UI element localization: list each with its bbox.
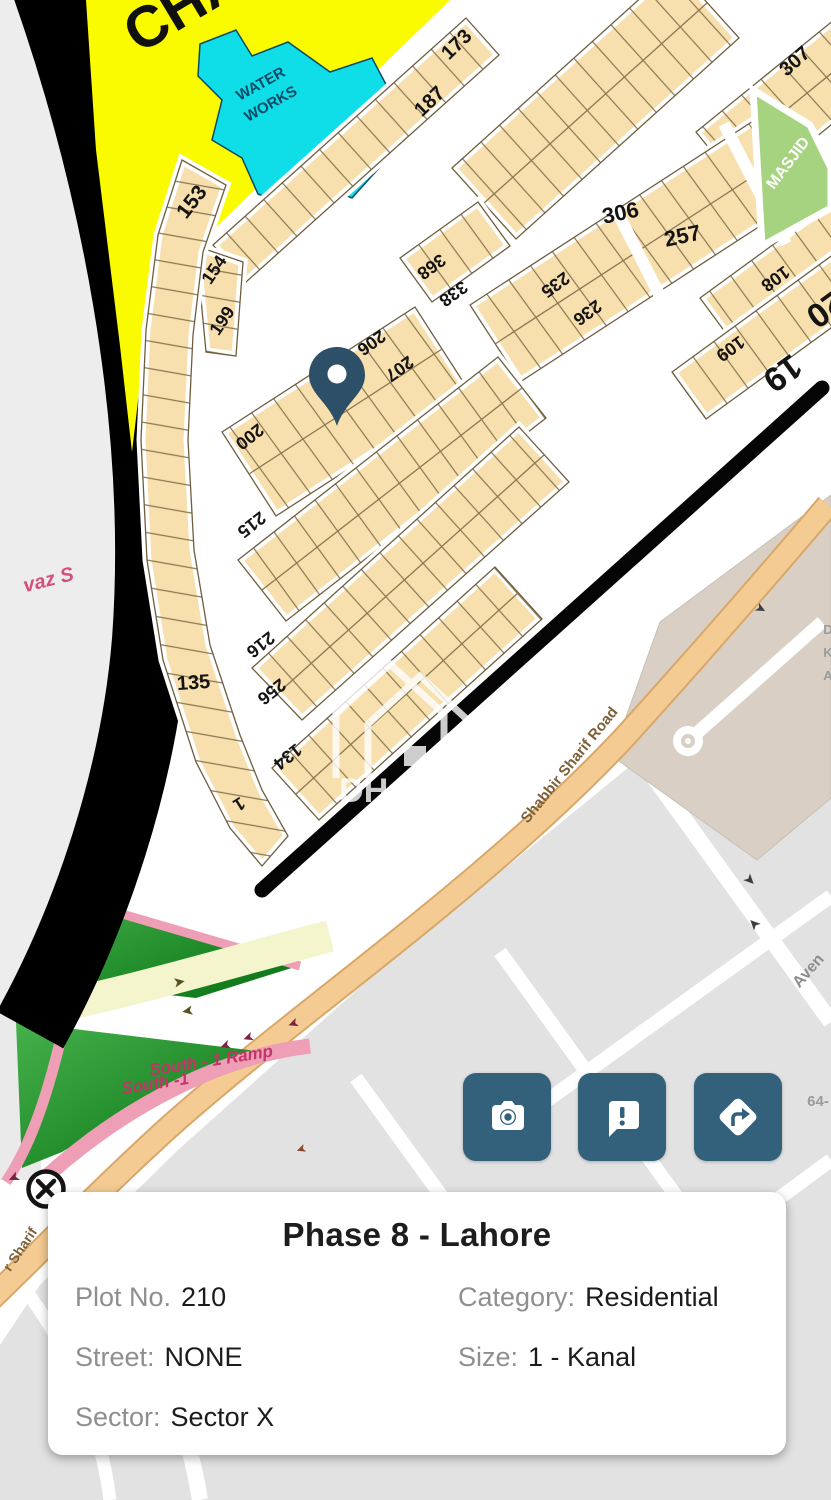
sector-value: Sector X bbox=[171, 1402, 275, 1432]
roundabout bbox=[685, 738, 691, 744]
map-label: D bbox=[823, 622, 831, 637]
card-title: Phase 8 - Lahore bbox=[48, 1216, 786, 1254]
app-screen: CHAWATERWORKS153154199173187200206207368… bbox=[0, 0, 831, 1500]
street-label: Street: bbox=[75, 1342, 155, 1372]
directions-icon bbox=[715, 1094, 761, 1140]
street-value: NONE bbox=[165, 1342, 243, 1372]
camera-button[interactable] bbox=[463, 1073, 551, 1161]
map-label: 135 bbox=[176, 671, 211, 695]
map-label: K bbox=[823, 645, 831, 660]
plot-no-label: Plot No. bbox=[75, 1282, 171, 1312]
map-label: 64- bbox=[807, 1093, 829, 1110]
plot-info-card: Phase 8 - Lahore Plot No.210 Category:Re… bbox=[48, 1192, 786, 1455]
watermark-text: DHA Plus bbox=[339, 772, 493, 810]
sector-row: Sector:Sector X bbox=[75, 1402, 274, 1433]
sector-label: Sector: bbox=[75, 1402, 161, 1432]
feedback-button[interactable] bbox=[578, 1073, 666, 1161]
plot-no-row: Plot No.210 bbox=[75, 1282, 226, 1313]
feedback-icon bbox=[599, 1094, 645, 1140]
plot-no-value: 210 bbox=[181, 1282, 226, 1312]
size-row: Size:1 - Kanal bbox=[458, 1342, 636, 1373]
category-label: Category: bbox=[458, 1282, 575, 1312]
map-label: A bbox=[823, 668, 831, 683]
directions-button[interactable] bbox=[694, 1073, 782, 1161]
street-row: Street:NONE bbox=[75, 1342, 243, 1373]
category-value: Residential bbox=[585, 1282, 719, 1312]
camera-icon bbox=[484, 1094, 530, 1140]
size-label: Size: bbox=[458, 1342, 518, 1372]
size-value: 1 - Kanal bbox=[528, 1342, 636, 1372]
category-row: Category:Residential bbox=[458, 1282, 719, 1313]
